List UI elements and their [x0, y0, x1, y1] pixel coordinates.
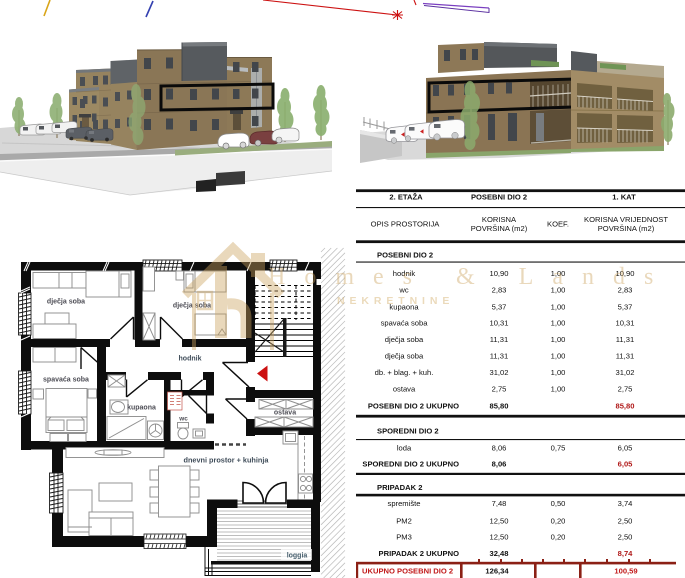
svg-text:SPOREDNI DIO 2 UKUPNO: SPOREDNI DIO 2 UKUPNO: [362, 460, 459, 469]
svg-text:0,20: 0,20: [551, 533, 566, 542]
svg-text:1,00: 1,00: [551, 385, 566, 394]
svg-text:PM3: PM3: [396, 533, 412, 542]
svg-text:5,37: 5,37: [618, 303, 633, 312]
svg-text:ostava: ostava: [274, 410, 296, 417]
svg-text:dnevni prostor + kuhinja: dnevni prostor + kuhinja: [184, 456, 270, 465]
svg-text:6,05: 6,05: [618, 460, 634, 469]
svg-text:2,75: 2,75: [618, 385, 633, 394]
svg-text:10,31: 10,31: [615, 319, 634, 328]
svg-text:0,75: 0,75: [551, 444, 566, 453]
svg-text:dječja soba: dječja soba: [385, 335, 424, 344]
svg-text:spremište: spremište: [388, 499, 421, 508]
svg-text:31,02: 31,02: [489, 368, 508, 377]
svg-text:spavaća soba: spavaća soba: [43, 377, 89, 384]
svg-text:1. KAT: 1. KAT: [612, 193, 636, 202]
svg-text:POSEBNI DIO 2: POSEBNI DIO 2: [377, 251, 433, 260]
svg-text:1,00: 1,00: [551, 352, 566, 361]
svg-text:6,05: 6,05: [618, 444, 633, 453]
svg-text:126,34: 126,34: [485, 567, 509, 576]
svg-text:ostava: ostava: [393, 385, 416, 394]
svg-text:KORISNA VRIJEDNOST: KORISNA VRIJEDNOST: [584, 215, 668, 224]
svg-text:POVRŠINA (m2): POVRŠINA (m2): [471, 224, 528, 233]
svg-text:32,48: 32,48: [489, 549, 508, 558]
svg-text:kupaona: kupaona: [127, 405, 156, 412]
svg-text:5,37: 5,37: [492, 303, 507, 312]
svg-text:2,75: 2,75: [492, 385, 507, 394]
svg-text:db. + blag. + kuh.: db. + blag. + kuh.: [375, 368, 434, 377]
svg-text:dječja soba: dječja soba: [47, 299, 85, 306]
svg-text:10,31: 10,31: [489, 319, 508, 328]
svg-text:POVRŠINA (m2): POVRŠINA (m2): [598, 224, 655, 233]
svg-text:wc: wc: [178, 416, 188, 423]
svg-text:spavaća soba: spavaća soba: [381, 319, 429, 328]
svg-text:1,00: 1,00: [551, 335, 566, 344]
svg-text:PM2: PM2: [396, 517, 412, 526]
svg-text:11,31: 11,31: [490, 352, 508, 361]
svg-text:2,50: 2,50: [618, 533, 633, 542]
svg-text:2,50: 2,50: [618, 517, 633, 526]
svg-text:1,00: 1,00: [551, 368, 566, 377]
svg-text:11,31: 11,31: [616, 335, 634, 344]
svg-text:85,80: 85,80: [615, 402, 634, 411]
svg-text:12,50: 12,50: [489, 517, 508, 526]
svg-text:dječja soba: dječja soba: [385, 352, 424, 361]
svg-text:loggia: loggia: [287, 553, 308, 560]
svg-text:31,02: 31,02: [615, 368, 634, 377]
svg-text:OPIS PROSTORIJA: OPIS PROSTORIJA: [371, 220, 441, 229]
svg-text:85,80: 85,80: [489, 402, 508, 411]
svg-text:7,48: 7,48: [492, 499, 507, 508]
svg-text:PRIPADAK 2: PRIPADAK 2: [377, 483, 422, 492]
svg-text:8,06: 8,06: [492, 460, 507, 469]
svg-text:2. ETAŽA: 2. ETAŽA: [389, 193, 423, 202]
svg-text:1,00: 1,00: [551, 319, 566, 328]
svg-text:11,31: 11,31: [490, 335, 508, 344]
svg-text:PRIPADAK 2 UKUPNO: PRIPADAK 2 UKUPNO: [379, 549, 460, 558]
svg-text:Homes & Lands: Homes & Lands: [268, 264, 672, 290]
svg-text:100,59: 100,59: [614, 567, 637, 576]
svg-text:KOEF.: KOEF.: [547, 220, 569, 229]
svg-text:1,00: 1,00: [551, 303, 566, 312]
svg-text:UKUPNO POSEBNI DIO 2: UKUPNO POSEBNI DIO 2: [362, 567, 453, 576]
svg-text:11,31: 11,31: [616, 352, 634, 361]
svg-text:8,06: 8,06: [492, 444, 507, 453]
svg-text:SPOREDNI DIO 2: SPOREDNI DIO 2: [377, 427, 439, 436]
svg-text:POSEBNI DIO 2: POSEBNI DIO 2: [471, 193, 527, 202]
svg-text:8,74: 8,74: [618, 549, 634, 558]
svg-text:POSEBNI DIO 2 UKUPNO: POSEBNI DIO 2 UKUPNO: [368, 402, 459, 411]
svg-text:hodnik: hodnik: [179, 356, 202, 363]
svg-text:3,74: 3,74: [618, 499, 633, 508]
svg-text:0,50: 0,50: [551, 499, 566, 508]
svg-text:12,50: 12,50: [489, 533, 508, 542]
svg-text:NEKRETNINE: NEKRETNINE: [337, 295, 454, 307]
svg-text:loda: loda: [397, 444, 412, 453]
svg-text:KORISNA: KORISNA: [482, 215, 517, 224]
svg-text:0,20: 0,20: [551, 517, 566, 526]
